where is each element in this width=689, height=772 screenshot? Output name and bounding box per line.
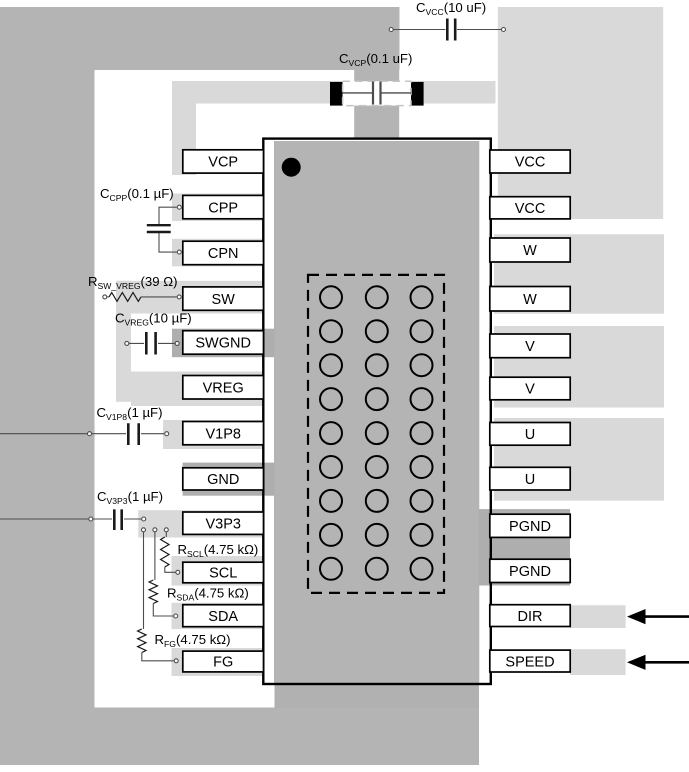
svg-text:RSDA(4.75 kΩ): RSDA(4.75 kΩ): [167, 586, 249, 603]
svg-text:V3P3: V3P3: [205, 516, 240, 532]
svg-text:CPN: CPN: [208, 246, 239, 262]
svg-text:SCL: SCL: [209, 566, 237, 582]
svg-text:W: W: [523, 292, 537, 308]
svg-text:V: V: [525, 382, 535, 398]
svg-text:CV1P8(1 µF): CV1P8(1 µF): [97, 405, 163, 422]
svg-text:V: V: [525, 339, 535, 355]
svg-text:DIR: DIR: [518, 609, 543, 625]
svg-text:RFG(4.75 kΩ): RFG(4.75 kΩ): [155, 632, 231, 649]
svg-text:VCC: VCC: [515, 201, 546, 217]
svg-text:CPP: CPP: [208, 200, 238, 216]
svg-text:W: W: [523, 243, 537, 259]
svg-text:SWGND: SWGND: [195, 336, 251, 352]
svg-text:RSCL(4.75 kΩ): RSCL(4.75 kΩ): [178, 542, 259, 559]
svg-text:SW: SW: [212, 292, 236, 308]
svg-text:RSW_VREG(39 Ω): RSW_VREG(39 Ω): [88, 274, 178, 291]
svg-text:V1P8: V1P8: [205, 426, 240, 442]
svg-text:SDA: SDA: [208, 609, 238, 625]
svg-text:VREG: VREG: [203, 380, 244, 396]
svg-text:CCPP(0.1 µF): CCPP(0.1 µF): [100, 186, 174, 203]
svg-text:GND: GND: [207, 472, 239, 488]
svg-text:VCC: VCC: [515, 155, 546, 171]
svg-text:CV3P3(1 µF): CV3P3(1 µF): [97, 489, 163, 506]
svg-text:SPEED: SPEED: [505, 654, 554, 670]
svg-text:PGND: PGND: [509, 519, 551, 535]
svg-text:U: U: [525, 427, 535, 443]
svg-text:PGND: PGND: [509, 564, 551, 580]
svg-text:VCP: VCP: [208, 155, 238, 171]
svg-text:U: U: [525, 472, 535, 488]
svg-text:CVCC(10 uF): CVCC(10 uF): [416, 0, 486, 17]
svg-text:FG: FG: [213, 655, 233, 671]
